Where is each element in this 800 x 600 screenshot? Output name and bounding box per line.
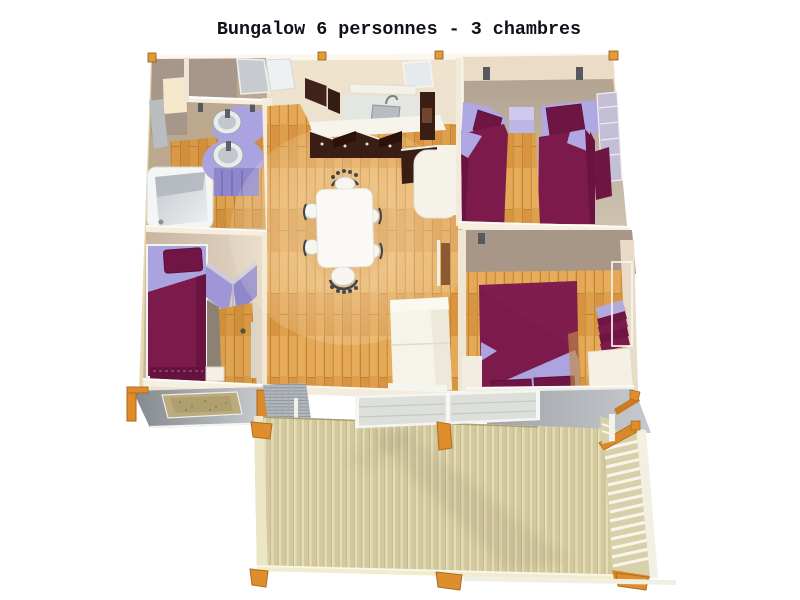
svg-text:Bungalow 6 personnes - 3 chamb: Bungalow 6 personnes - 3 chambres <box>217 19 581 40</box>
